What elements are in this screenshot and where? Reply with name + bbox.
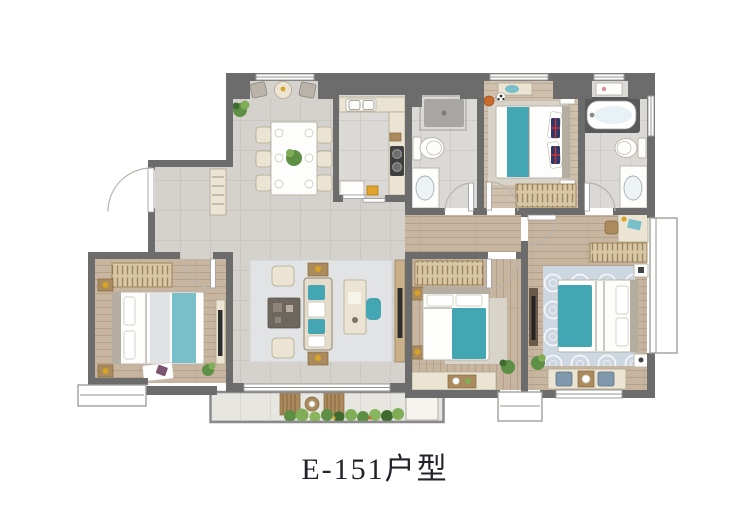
- tv-cabinet: [395, 260, 405, 362]
- toilet: [615, 138, 646, 158]
- tv: [398, 288, 403, 338]
- floor-plan-figure: [0, 0, 750, 515]
- bay-window-ledge: [412, 372, 496, 390]
- double-bed: [558, 280, 638, 352]
- wardrobe: [516, 184, 576, 207]
- double-bed: [112, 292, 204, 364]
- window-nook: [250, 81, 317, 98]
- nightstand: [412, 346, 423, 359]
- floor-plan-page: E-151户型: [0, 0, 750, 515]
- bathtub: [583, 97, 640, 133]
- tv: [532, 296, 536, 340]
- wardrobe: [112, 263, 172, 287]
- sofa: [304, 278, 332, 350]
- football: [497, 93, 506, 102]
- gas-meter: [367, 186, 378, 195]
- vanity-sink: [412, 168, 439, 208]
- plan-title: E-151户型: [0, 444, 750, 488]
- nightstand: [98, 279, 113, 291]
- shoe-cabinet: [210, 169, 226, 215]
- nightstand: [634, 264, 648, 277]
- appliance: [340, 181, 364, 195]
- armchair: [272, 338, 294, 358]
- double-bed: [496, 106, 570, 178]
- nightstand: [634, 354, 648, 367]
- basketball: [484, 96, 494, 106]
- desk-chair: [366, 298, 381, 320]
- toilet: [413, 137, 444, 160]
- desk-chair: [605, 221, 618, 234]
- side-table: [308, 352, 328, 365]
- vanity-sink: [620, 166, 647, 208]
- coffee-table: [268, 298, 300, 328]
- window-nook: [596, 83, 622, 95]
- nightstand: [98, 365, 113, 377]
- entry-foyer: [210, 169, 226, 215]
- window-seat: [548, 369, 626, 389]
- wardrobe: [590, 243, 647, 262]
- double-bed: [423, 287, 489, 360]
- tv: [218, 310, 223, 356]
- wardrobe: [415, 261, 483, 285]
- bay-window: [650, 218, 677, 353]
- nightstand: [412, 287, 423, 300]
- shower-drain: [442, 111, 447, 116]
- armchair: [272, 266, 294, 286]
- tv-cabinet: [216, 300, 225, 364]
- balcony-step: [406, 396, 438, 420]
- tv-cabinet: [529, 288, 538, 346]
- cutting-board: [390, 133, 401, 141]
- entry-door: [108, 168, 154, 212]
- side-table: [308, 263, 328, 276]
